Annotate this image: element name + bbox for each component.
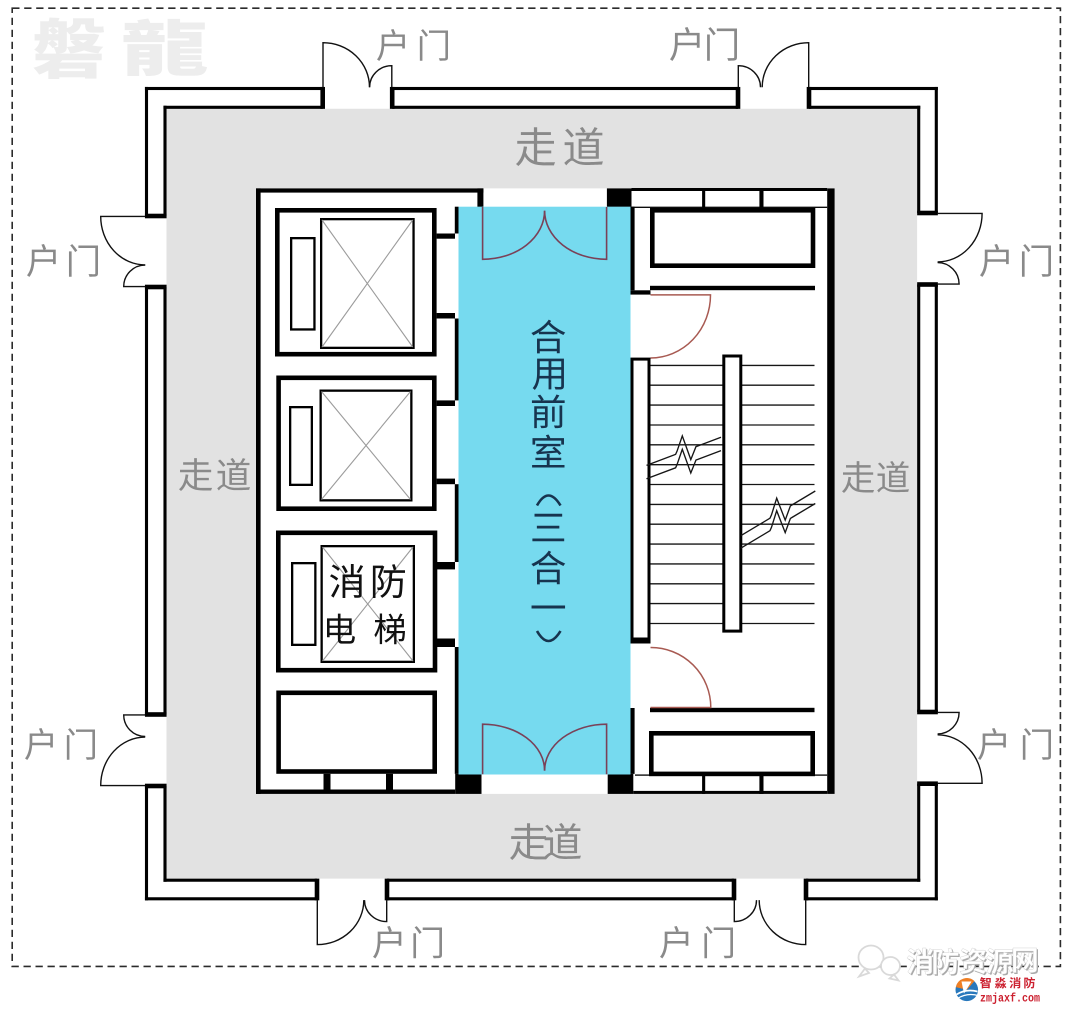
svg-text:zmjaxf.com: zmjaxf.com: [980, 993, 1040, 1006]
